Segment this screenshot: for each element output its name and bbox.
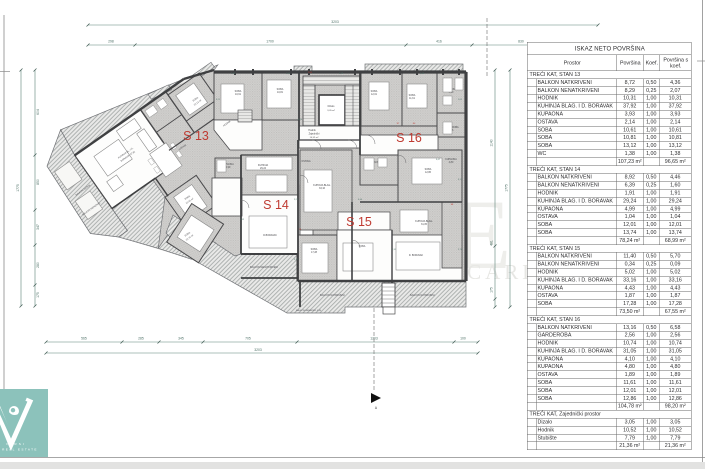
- svg-text:29,24: 29,24: [260, 167, 267, 170]
- svg-text:3203: 3203: [254, 348, 262, 352]
- svg-text:175: 175: [36, 292, 40, 298]
- svg-text:BALKON NENATKR. 0,34: BALKON NENATKR. 0,34: [296, 309, 322, 312]
- svg-text:175: 175: [490, 287, 494, 293]
- svg-text:4,80: 4,80: [449, 161, 454, 164]
- svg-text:3,05 m²: 3,05 m²: [327, 109, 335, 112]
- svg-text:BALKON NATKRIVENI: BALKON NATKRIVENI: [320, 294, 345, 297]
- svg-text:11,61: 11,61: [409, 97, 415, 100]
- svg-text:10,52 m²: 10,52 m²: [310, 136, 319, 139]
- svg-text:850: 850: [36, 179, 40, 185]
- svg-text:A: A: [375, 406, 378, 410]
- svg-text:285: 285: [138, 337, 144, 341]
- svg-text:10,81: 10,81: [277, 91, 284, 94]
- svg-text:3203: 3203: [331, 20, 339, 24]
- svg-text:S 16: S 16: [396, 131, 422, 145]
- svg-text:BALKON NATKRIVENI: BALKON NATKRIVENI: [410, 294, 435, 297]
- svg-text:S 15: S 15: [346, 215, 372, 229]
- svg-text:31,05: 31,05: [421, 223, 428, 226]
- svg-text:1700: 1700: [266, 40, 274, 44]
- svg-text:12,01: 12,01: [371, 93, 378, 96]
- svg-text:33,16: 33,16: [319, 187, 326, 190]
- svg-text:BALKON NENATKRIVENI: BALKON NENATKRIVENI: [250, 266, 278, 269]
- svg-text:1140: 1140: [490, 139, 494, 146]
- svg-text:Zajednički: Zajednički: [309, 133, 320, 136]
- svg-text:345: 345: [178, 337, 184, 341]
- svg-text:1775: 1775: [16, 184, 20, 192]
- svg-text:481: 481: [490, 240, 494, 246]
- svg-text:416: 416: [436, 40, 442, 44]
- svg-text:S 14: S 14: [263, 198, 289, 212]
- svg-text:830: 830: [518, 40, 524, 44]
- svg-text:604: 604: [36, 109, 40, 115]
- svg-text:OSTAVA: OSTAVA: [301, 160, 311, 163]
- svg-text:100: 100: [460, 337, 466, 341]
- svg-text:S 13: S 13: [183, 129, 209, 143]
- svg-text:17,28: 17,28: [311, 251, 318, 254]
- svg-text:REAL ESTATE: REAL ESTATE: [2, 448, 38, 452]
- svg-text:705: 705: [245, 337, 251, 341]
- svg-text:298: 298: [108, 40, 114, 44]
- svg-text:Dizalo: Dizalo: [328, 105, 335, 108]
- svg-text:565: 565: [81, 337, 87, 341]
- svg-text:280: 280: [36, 262, 40, 268]
- svg-text:1775: 1775: [505, 184, 509, 192]
- svg-text:D. BORAVAK: D. BORAVAK: [409, 254, 424, 257]
- svg-text:10,61: 10,61: [235, 93, 242, 96]
- svg-text:4,99: 4,99: [226, 166, 231, 169]
- svg-text:VERSI: VERSI: [6, 442, 26, 446]
- svg-text:D.BORAVAK: D.BORAVAK: [263, 234, 277, 237]
- svg-text:347: 347: [36, 224, 40, 230]
- svg-text:12,86: 12,86: [425, 171, 432, 174]
